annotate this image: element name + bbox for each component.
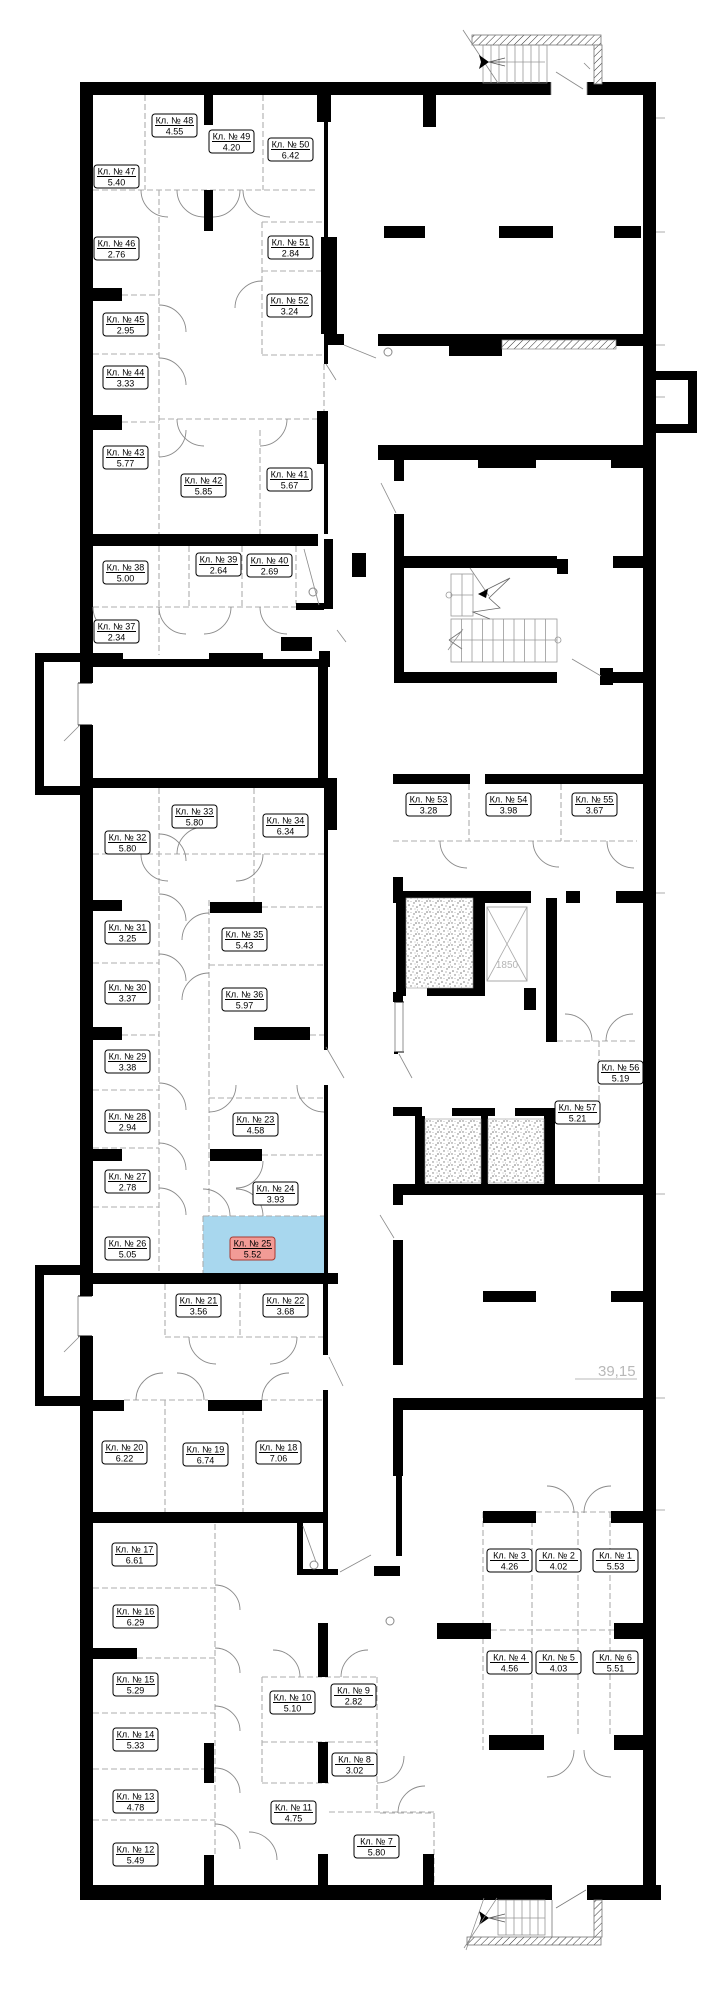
svg-text:Кл. № 13: Кл. № 13: [117, 1792, 155, 1802]
svg-text:4.20: 4.20: [223, 143, 241, 153]
svg-text:5.80: 5.80: [368, 1848, 386, 1858]
svg-text:4.26: 4.26: [501, 1562, 519, 1572]
svg-text:5.80: 5.80: [119, 844, 137, 854]
svg-text:Кл. № 1: Кл. № 1: [599, 1551, 632, 1561]
svg-text:Кл. № 28: Кл. № 28: [109, 1112, 147, 1122]
svg-text:3.98: 3.98: [500, 806, 518, 816]
svg-text:Кл. № 21: Кл. № 21: [180, 1296, 218, 1306]
svg-text:Кл. № 48: Кл. № 48: [156, 116, 194, 126]
svg-text:6.29: 6.29: [127, 1618, 145, 1628]
svg-text:5.52: 5.52: [244, 1250, 262, 1260]
svg-text:Кл. № 29: Кл. № 29: [109, 1052, 147, 1062]
svg-text:Кл. № 32: Кл. № 32: [109, 833, 147, 843]
svg-text:Кл. № 33: Кл. № 33: [176, 807, 214, 817]
svg-text:3.93: 3.93: [267, 1195, 285, 1205]
svg-text:3.68: 3.68: [277, 1307, 295, 1317]
svg-text:Кл. № 34: Кл. № 34: [267, 816, 305, 826]
svg-text:5.85: 5.85: [195, 487, 213, 497]
svg-text:4.75: 4.75: [285, 1814, 303, 1824]
svg-text:5.80: 5.80: [186, 818, 204, 828]
svg-text:4.02: 4.02: [550, 1562, 568, 1572]
svg-text:6.61: 6.61: [126, 1556, 144, 1566]
svg-text:Кл. № 49: Кл. № 49: [213, 132, 251, 142]
svg-text:Кл. № 8: Кл. № 8: [338, 1755, 371, 1765]
svg-text:Кл. № 52: Кл. № 52: [271, 296, 309, 306]
svg-text:Кл. № 3: Кл. № 3: [493, 1551, 526, 1561]
svg-text:3.02: 3.02: [346, 1766, 364, 1776]
svg-text:39,15: 39,15: [598, 1363, 636, 1380]
svg-text:Кл. № 54: Кл. № 54: [490, 795, 528, 805]
svg-text:Кл. № 7: Кл. № 7: [360, 1837, 393, 1847]
svg-text:3.37: 3.37: [119, 994, 137, 1004]
svg-text:Кл. № 2: Кл. № 2: [542, 1551, 575, 1561]
svg-text:Кл. № 23: Кл. № 23: [237, 1115, 275, 1125]
svg-text:7.06: 7.06: [270, 1454, 288, 1464]
svg-text:1850: 1850: [496, 960, 519, 971]
svg-text:4.03: 4.03: [550, 1664, 568, 1674]
svg-text:Кл. № 19: Кл. № 19: [187, 1445, 225, 1455]
svg-text:Кл. № 37: Кл. № 37: [98, 622, 136, 632]
svg-text:Кл. № 43: Кл. № 43: [107, 448, 145, 458]
svg-text:5.49: 5.49: [127, 1856, 145, 1866]
svg-text:5.10: 5.10: [284, 1704, 302, 1714]
svg-text:5.40: 5.40: [108, 178, 126, 188]
svg-text:2.95: 2.95: [117, 326, 135, 336]
svg-text:Кл. № 40: Кл. № 40: [251, 556, 289, 566]
svg-text:2.94: 2.94: [119, 1123, 137, 1133]
svg-text:Кл. № 41: Кл. № 41: [271, 470, 309, 480]
svg-text:2.34: 2.34: [108, 633, 126, 643]
svg-text:Кл. № 25: Кл. № 25: [234, 1239, 272, 1249]
svg-text:6.22: 6.22: [116, 1454, 134, 1464]
svg-text:Кл. № 46: Кл. № 46: [98, 239, 136, 249]
svg-text:2.76: 2.76: [108, 250, 126, 260]
svg-text:Кл. № 11: Кл. № 11: [275, 1803, 312, 1813]
svg-text:2.78: 2.78: [119, 1183, 137, 1193]
svg-text:Кл. № 45: Кл. № 45: [107, 315, 145, 325]
svg-text:Кл. № 5: Кл. № 5: [542, 1653, 575, 1663]
svg-text:Кл. № 50: Кл. № 50: [272, 140, 310, 150]
svg-text:5.19: 5.19: [612, 1074, 630, 1084]
svg-text:4.58: 4.58: [247, 1126, 265, 1136]
svg-text:3.67: 3.67: [586, 806, 604, 816]
svg-text:Кл. № 30: Кл. № 30: [109, 983, 147, 993]
svg-text:2.69: 2.69: [261, 567, 279, 577]
svg-text:3.25: 3.25: [119, 934, 137, 944]
svg-text:Кл. № 16: Кл. № 16: [117, 1607, 155, 1617]
svg-text:5.53: 5.53: [607, 1562, 625, 1572]
svg-text:4.78: 4.78: [127, 1803, 145, 1813]
svg-text:Кл. № 18: Кл. № 18: [260, 1443, 298, 1453]
svg-text:6.42: 6.42: [282, 151, 300, 161]
svg-text:Кл. № 6: Кл. № 6: [599, 1653, 632, 1663]
svg-text:5.29: 5.29: [127, 1686, 145, 1696]
svg-text:4.56: 4.56: [501, 1664, 519, 1674]
svg-text:5.97: 5.97: [236, 1001, 254, 1011]
svg-text:Кл. № 14: Кл. № 14: [117, 1730, 155, 1740]
svg-text:Кл. № 10: Кл. № 10: [274, 1693, 312, 1703]
svg-text:5.77: 5.77: [117, 459, 135, 469]
svg-text:Кл. № 44: Кл. № 44: [107, 368, 145, 378]
svg-text:Кл. № 4: Кл. № 4: [493, 1653, 526, 1663]
svg-text:Кл. № 36: Кл. № 36: [226, 990, 264, 1000]
svg-text:2.64: 2.64: [210, 566, 228, 576]
svg-text:3.24: 3.24: [281, 307, 299, 317]
svg-text:2.82: 2.82: [345, 1697, 363, 1707]
svg-text:Кл. № 20: Кл. № 20: [106, 1443, 144, 1453]
svg-text:6.34: 6.34: [277, 827, 295, 837]
svg-text:Кл. № 31: Кл. № 31: [109, 923, 147, 933]
svg-text:Кл. № 56: Кл. № 56: [602, 1063, 640, 1073]
svg-text:2.84: 2.84: [282, 249, 300, 259]
svg-text:Кл. № 47: Кл. № 47: [98, 167, 136, 177]
svg-text:3.56: 3.56: [190, 1307, 208, 1317]
svg-text:5.67: 5.67: [281, 481, 299, 491]
svg-text:4.55: 4.55: [166, 127, 184, 137]
svg-text:Кл. № 27: Кл. № 27: [109, 1172, 147, 1182]
svg-text:5.21: 5.21: [569, 1114, 587, 1124]
svg-text:Кл. № 15: Кл. № 15: [117, 1675, 155, 1685]
svg-text:5.33: 5.33: [127, 1741, 145, 1751]
svg-text:5.51: 5.51: [607, 1664, 625, 1674]
svg-text:Кл. № 42: Кл. № 42: [185, 476, 223, 486]
svg-text:3.28: 3.28: [420, 806, 438, 816]
svg-text:5.05: 5.05: [119, 1250, 137, 1260]
svg-text:Кл. № 35: Кл. № 35: [226, 930, 264, 940]
svg-text:3.33: 3.33: [117, 379, 135, 389]
svg-text:Кл. № 22: Кл. № 22: [267, 1296, 305, 1306]
svg-text:Кл. № 53: Кл. № 53: [410, 795, 448, 805]
svg-text:5.00: 5.00: [117, 574, 135, 584]
svg-text:Кл. № 51: Кл. № 51: [272, 238, 310, 248]
svg-text:Кл. № 39: Кл. № 39: [200, 555, 238, 565]
svg-text:Кл. № 38: Кл. № 38: [107, 563, 145, 573]
svg-text:5.43: 5.43: [236, 941, 254, 951]
svg-text:Кл. № 17: Кл. № 17: [116, 1545, 154, 1555]
svg-text:Кл. № 57: Кл. № 57: [559, 1103, 597, 1113]
svg-text:6.74: 6.74: [197, 1456, 215, 1466]
svg-text:Кл. № 26: Кл. № 26: [109, 1239, 147, 1249]
svg-text:Кл. № 55: Кл. № 55: [576, 795, 614, 805]
svg-text:Кл. № 12: Кл. № 12: [117, 1845, 155, 1855]
svg-text:3.38: 3.38: [119, 1063, 137, 1073]
svg-text:Кл. № 9: Кл. № 9: [337, 1686, 370, 1696]
svg-text:Кл. № 24: Кл. № 24: [257, 1184, 295, 1194]
